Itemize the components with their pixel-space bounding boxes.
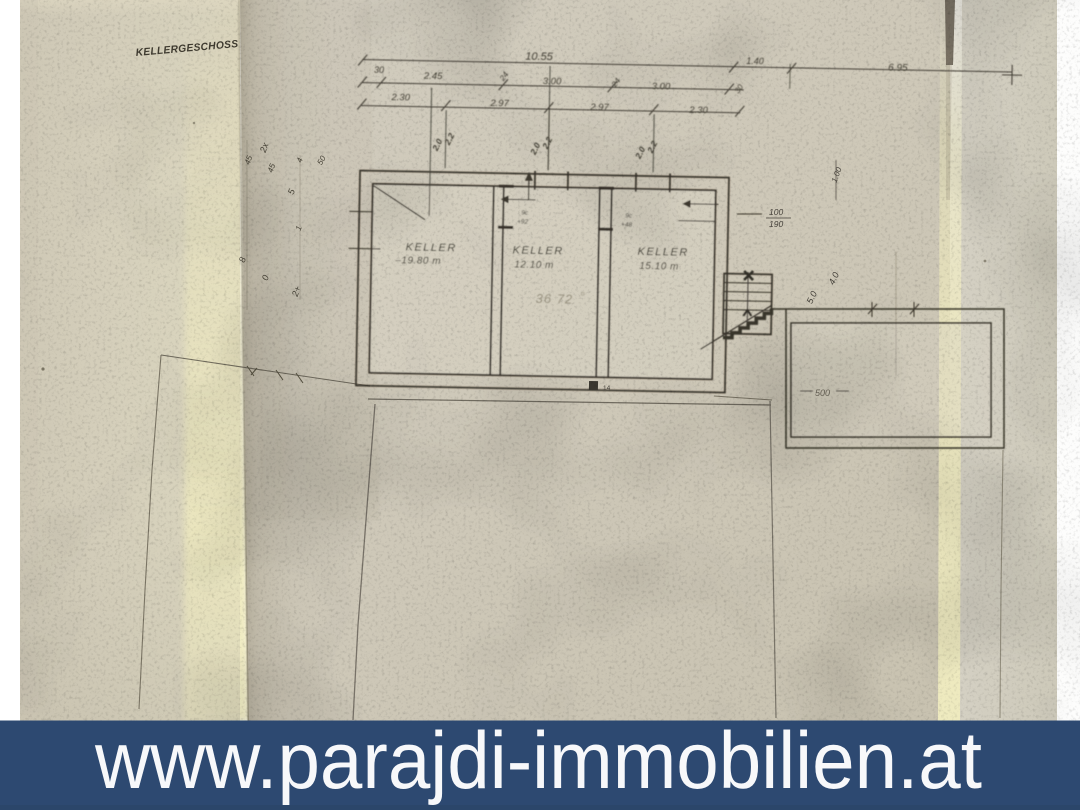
svg-text:www.parajdi-immobilien.at: www.parajdi-immobilien.at: [94, 716, 982, 806]
